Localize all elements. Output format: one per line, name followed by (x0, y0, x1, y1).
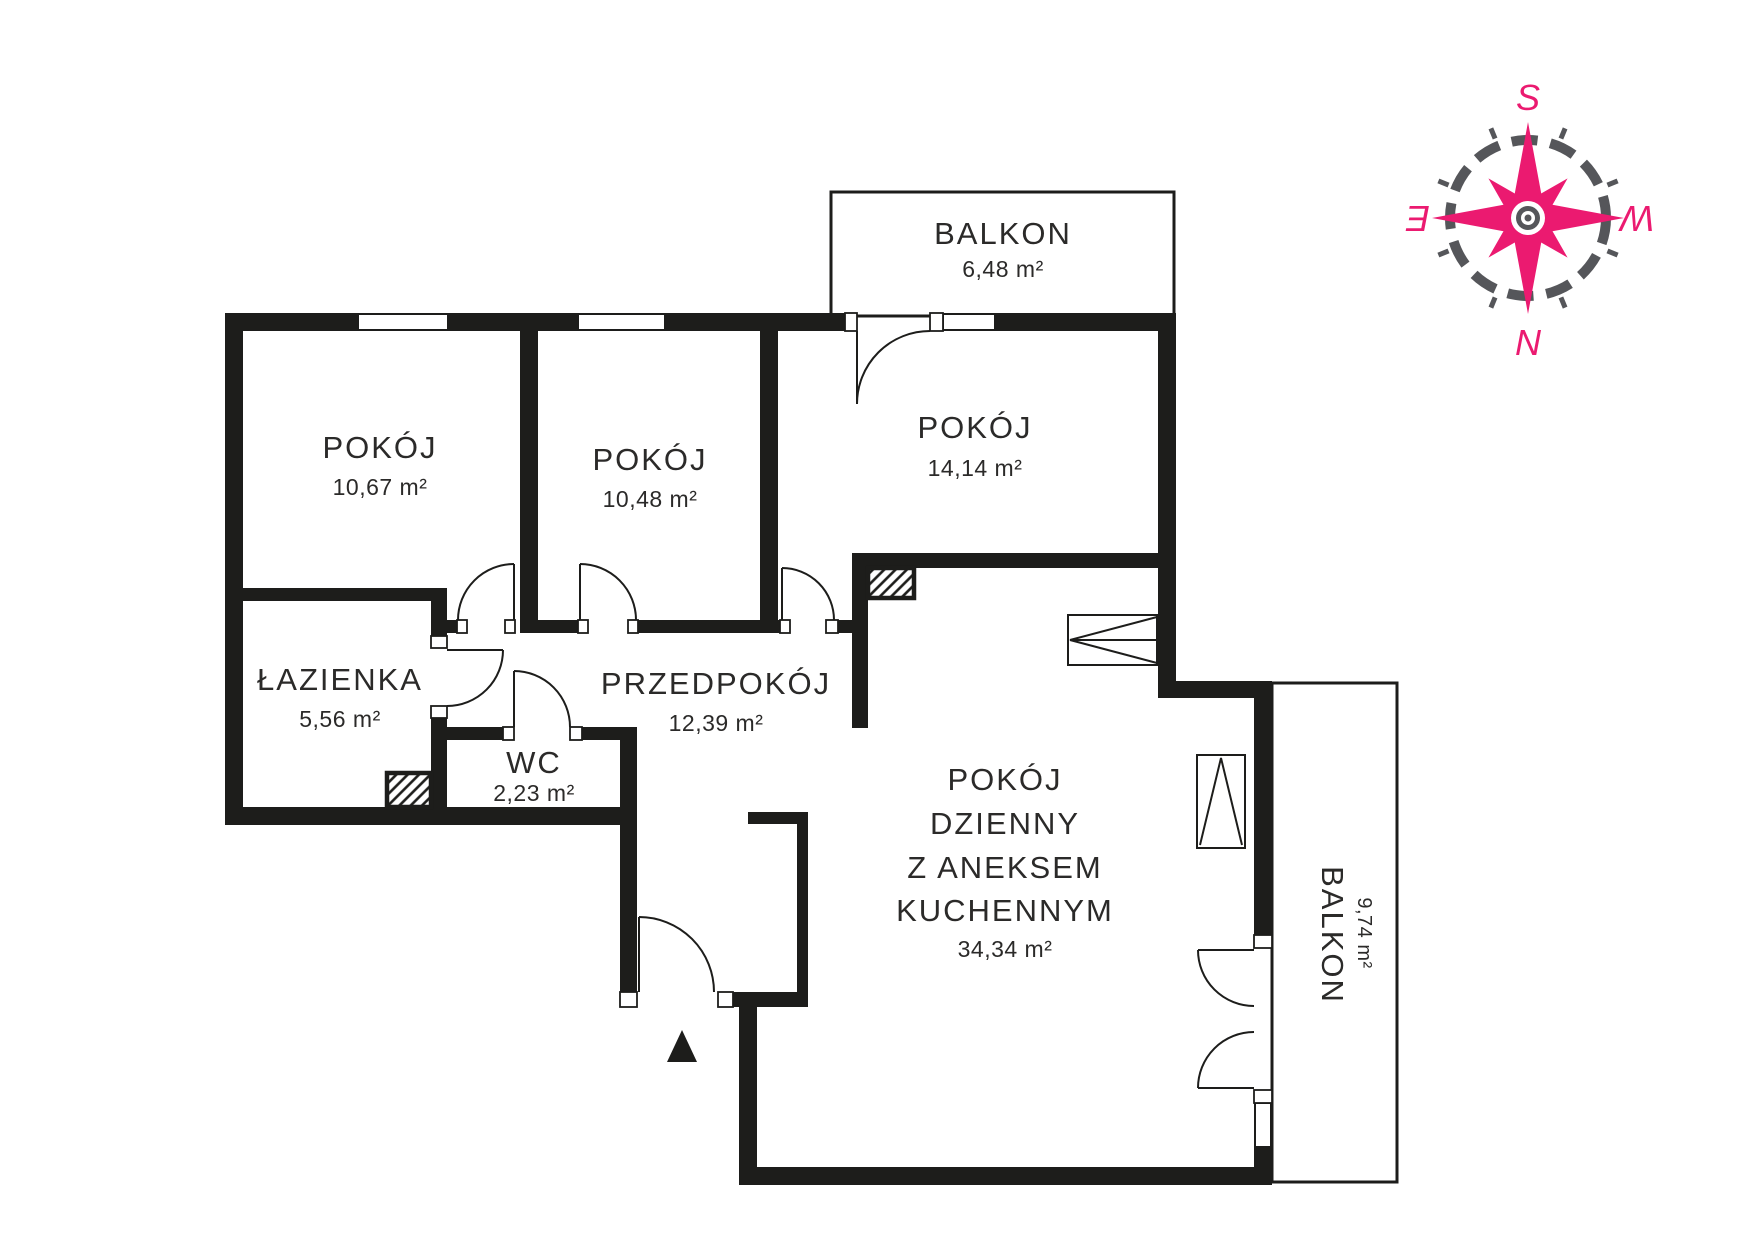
door-frame (845, 313, 857, 331)
door-frame (578, 620, 588, 633)
door-frame (718, 992, 733, 1007)
door-frame (628, 620, 638, 633)
compass-rose-icon: S N E W (1405, 77, 1655, 363)
room-label-lazienka: ŁAZIENKA (257, 662, 423, 697)
wardrobe-symbol (1068, 615, 1157, 665)
top-balcony-outline (831, 192, 1174, 316)
room-area-lazienka: 5,56 m² (299, 706, 380, 732)
door-swing (782, 568, 834, 620)
door-frame (503, 727, 514, 740)
room-label-salon-4: KUCHENNYM (896, 893, 1114, 928)
room-label-pokoj2: POKÓJ (592, 442, 707, 477)
window (1255, 1103, 1271, 1147)
room-label-salon-2: DZIENNY (930, 806, 1080, 841)
door-frame (505, 620, 515, 633)
door-frame (930, 313, 943, 331)
room-label-balkon-top: BALKON (934, 216, 1072, 251)
compass-letter-west: W (1618, 198, 1655, 239)
wardrobe-symbol (1197, 755, 1245, 848)
door-swing (857, 331, 930, 404)
door-frame (570, 727, 582, 740)
room-area-pokoj1: 10,67 m² (333, 474, 428, 500)
window (358, 314, 448, 330)
compass-letter-north: N (1515, 322, 1542, 363)
door-frame (431, 636, 447, 648)
room-area-pokoj2: 10,48 m² (603, 486, 698, 512)
compass-letter-east: E (1405, 198, 1430, 239)
door-frame (780, 620, 790, 633)
room-area-balkon-top: 6,48 m² (962, 256, 1043, 282)
compass-letter-south: S (1516, 77, 1540, 118)
door-swing (447, 650, 503, 706)
floor-plan-svg: POKÓJ 10,67 m² POKÓJ 10,48 m² POKÓJ 14,1… (0, 0, 1759, 1252)
balcony-double-door (1198, 950, 1254, 1088)
entrance-arrow-icon (667, 1030, 697, 1062)
room-label-przedpokoj: PRZEDPOKÓJ (601, 666, 831, 701)
door-frame (1254, 1090, 1272, 1103)
room-label-pokoj1: POKÓJ (322, 430, 437, 465)
room-label-pokoj3: POKÓJ (917, 410, 1032, 445)
window (943, 314, 995, 330)
door-swing (514, 671, 570, 727)
room-label-salon-1: POKÓJ (947, 762, 1062, 797)
door-swing (580, 564, 636, 620)
labels-layer: POKÓJ 10,67 m² POKÓJ 10,48 m² POKÓJ 14,1… (257, 216, 1375, 1004)
room-area-przedpokoj: 12,39 m² (669, 710, 764, 736)
floor-plan-page: POKÓJ 10,67 m² POKÓJ 10,48 m² POKÓJ 14,1… (0, 0, 1759, 1252)
room-label-balkon-right: BALKON (1315, 866, 1350, 1004)
room-label-wc: WC (506, 745, 562, 780)
room-area-wc: 2,23 m² (493, 780, 574, 806)
door-frame (457, 620, 467, 633)
door-frame (431, 706, 447, 718)
room-area-salon: 34,34 m² (958, 936, 1053, 962)
compass-hub-dot (1525, 215, 1532, 222)
door-swing (458, 564, 514, 620)
furniture-layer (1068, 615, 1245, 848)
entrance-door (639, 917, 714, 992)
shaft-hatch (868, 568, 914, 598)
door-frame (1254, 935, 1272, 948)
door-frame (826, 620, 838, 633)
window (578, 314, 665, 330)
balcony-outlines (831, 192, 1397, 1182)
door-frames (431, 313, 1272, 1103)
room-area-balkon-right: 9,74 m² (1353, 897, 1375, 968)
doors-layer (447, 331, 1254, 1088)
shaft-hatch (387, 773, 431, 807)
door-frame (620, 992, 637, 1007)
room-label-salon-3: Z ANEKSEM (907, 850, 1102, 885)
room-area-pokoj3: 14,14 m² (928, 455, 1023, 481)
